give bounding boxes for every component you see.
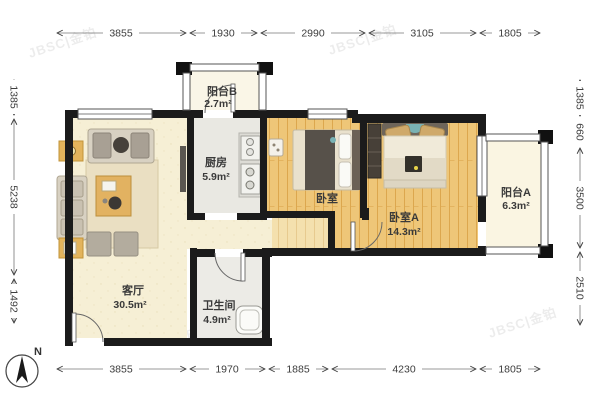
- balcony-glazing: [486, 134, 540, 141]
- dim-value: 1885: [286, 364, 310, 376]
- wall: [262, 248, 486, 256]
- sink-bowl: [247, 139, 254, 146]
- wall: [104, 338, 272, 346]
- wall: [352, 114, 486, 123]
- watermark-text: JBSC|金铂: [486, 305, 558, 341]
- bedroom-a-window: [477, 136, 487, 196]
- corridor-floor: [272, 218, 335, 248]
- wall: [190, 249, 215, 257]
- nightstand: [269, 139, 283, 156]
- wall: [243, 249, 272, 257]
- dim-segment: 660: [574, 119, 587, 145]
- watermark-text: JBSC|金铂: [326, 22, 398, 58]
- dim-value: 4230: [392, 364, 416, 376]
- wall: [260, 211, 335, 218]
- table-tray: [102, 181, 116, 191]
- pillow: [339, 134, 351, 159]
- dim-segment: 1930: [190, 27, 257, 40]
- room-area-bedroom-a: 14.3m²: [387, 226, 421, 238]
- dim-value: 3500: [574, 186, 586, 210]
- dim-value: 1492: [8, 289, 20, 313]
- ottoman: [87, 232, 111, 256]
- floor-plan-canvas: JBSC|金铂 JBSC|金铂 JBSC|金铂 JBSC|金铂 JBSC|金铂: [0, 0, 600, 410]
- wall: [152, 110, 203, 118]
- room-area-balcony-a: 6.3m²: [502, 200, 530, 212]
- room-label-balcony-b: 阳台B: [207, 84, 237, 98]
- dim-value: 1970: [215, 364, 239, 376]
- dim-segment: 3500: [574, 148, 587, 248]
- dim-segment: 1385: [574, 80, 587, 116]
- compass: N: [6, 346, 42, 387]
- lounge-chair: [113, 137, 129, 153]
- dim-value: 2510: [574, 276, 586, 300]
- room-label-bedroom: 卧室: [316, 191, 338, 205]
- dim-segment: 2510: [574, 252, 587, 325]
- dim-value: 660: [574, 123, 586, 141]
- balcony-glazing: [259, 73, 266, 110]
- dim-segment: 1970: [190, 363, 265, 376]
- room-area-balcony-b: 2.7m²: [204, 98, 232, 110]
- dim-segment: 1492: [8, 279, 21, 323]
- dimensions-bottom: 3855 1970 1885 4230 1805: [57, 363, 540, 376]
- dim-value: 1805: [498, 364, 522, 376]
- room-label-living: 客厅: [121, 283, 144, 297]
- stove-burner: [246, 168, 254, 176]
- pillow: [339, 162, 351, 187]
- wardrobe: [368, 124, 381, 178]
- balcony-glazing: [541, 142, 548, 246]
- passage-floor: [187, 220, 272, 249]
- watermark-text: JBSC|金铂: [26, 25, 98, 61]
- dim-value: 1930: [211, 28, 235, 40]
- room-label-kitchen: 厨房: [205, 155, 227, 169]
- sofa-cushion: [93, 133, 111, 158]
- dim-value: 3855: [109, 364, 133, 376]
- wall: [478, 196, 486, 222]
- dim-value: 5238: [8, 185, 20, 209]
- sink-bowl: [247, 149, 254, 156]
- ottoman: [114, 232, 138, 256]
- bed-a-tray: [405, 156, 422, 172]
- nightstand-decor: [273, 144, 276, 147]
- table-vase: [109, 197, 122, 210]
- room-label-bedroom-a: 卧室A: [389, 210, 419, 224]
- wall: [233, 110, 308, 118]
- floor-plan-svg: JBSC|金铂 JBSC|金铂 JBSC|金铂 JBSC|金铂 JBSC|金铂: [0, 0, 600, 410]
- sofa-cushion: [131, 133, 149, 158]
- bed-a-footboard: [384, 180, 446, 188]
- balcony-glazing: [190, 64, 259, 71]
- wall: [187, 118, 194, 220]
- wall: [478, 246, 486, 256]
- stove-burner: [246, 181, 254, 189]
- wall: [65, 110, 73, 346]
- tv-console: [180, 146, 186, 192]
- nightstand-decor: [277, 149, 280, 152]
- compass-north-label: N: [34, 346, 42, 358]
- room-area-living: 30.5m²: [113, 299, 147, 311]
- bedroom-window: [308, 109, 347, 119]
- wall: [478, 114, 486, 136]
- dim-value: 1805: [498, 28, 522, 40]
- wall: [187, 213, 205, 220]
- wall: [65, 338, 70, 346]
- kitchen-furniture: [239, 133, 262, 197]
- wall: [360, 114, 367, 218]
- room-label-balcony-a: 阳台A: [501, 185, 531, 199]
- living-room-window: [78, 109, 152, 119]
- dimensions-right: 1385 660 3500 2510: [574, 80, 587, 325]
- bedroom-a-furniture: [368, 123, 448, 188]
- dim-segment: 1805: [480, 27, 540, 40]
- dim-segment: 5238: [8, 119, 21, 275]
- dim-segment: 1805: [480, 363, 540, 376]
- dim-segment: 4230: [332, 363, 476, 376]
- dim-value: 3105: [410, 28, 434, 40]
- wall: [262, 256, 270, 346]
- room-label-bath: 卫生间: [203, 298, 236, 312]
- decor-pillow: [330, 137, 336, 143]
- wall: [190, 248, 197, 346]
- tray-dot: [414, 166, 418, 170]
- north-needle-icon: [16, 356, 28, 383]
- wall: [260, 110, 267, 218]
- table-bowl: [103, 199, 108, 204]
- dim-segment: 3855: [57, 363, 186, 376]
- dimensions-top: 3855 1930 2990 3105 1805: [57, 27, 540, 40]
- dim-value: 1385: [574, 86, 586, 110]
- dim-value: 1385: [8, 85, 20, 109]
- balcony-glazing: [486, 247, 540, 254]
- bed-headboard: [352, 130, 360, 190]
- balcony-glazing: [183, 73, 190, 110]
- room-area-kitchen: 5.9m²: [202, 171, 230, 183]
- bathroom-furniture: [236, 306, 263, 334]
- dim-segment: 1885: [269, 363, 328, 376]
- dim-value: 3855: [109, 28, 133, 40]
- dim-value: 2990: [301, 28, 325, 40]
- dim-segment: 1385: [8, 80, 21, 115]
- room-area-bath: 4.9m²: [203, 314, 231, 326]
- dimensions-left: 1385 5238 1492: [8, 80, 21, 323]
